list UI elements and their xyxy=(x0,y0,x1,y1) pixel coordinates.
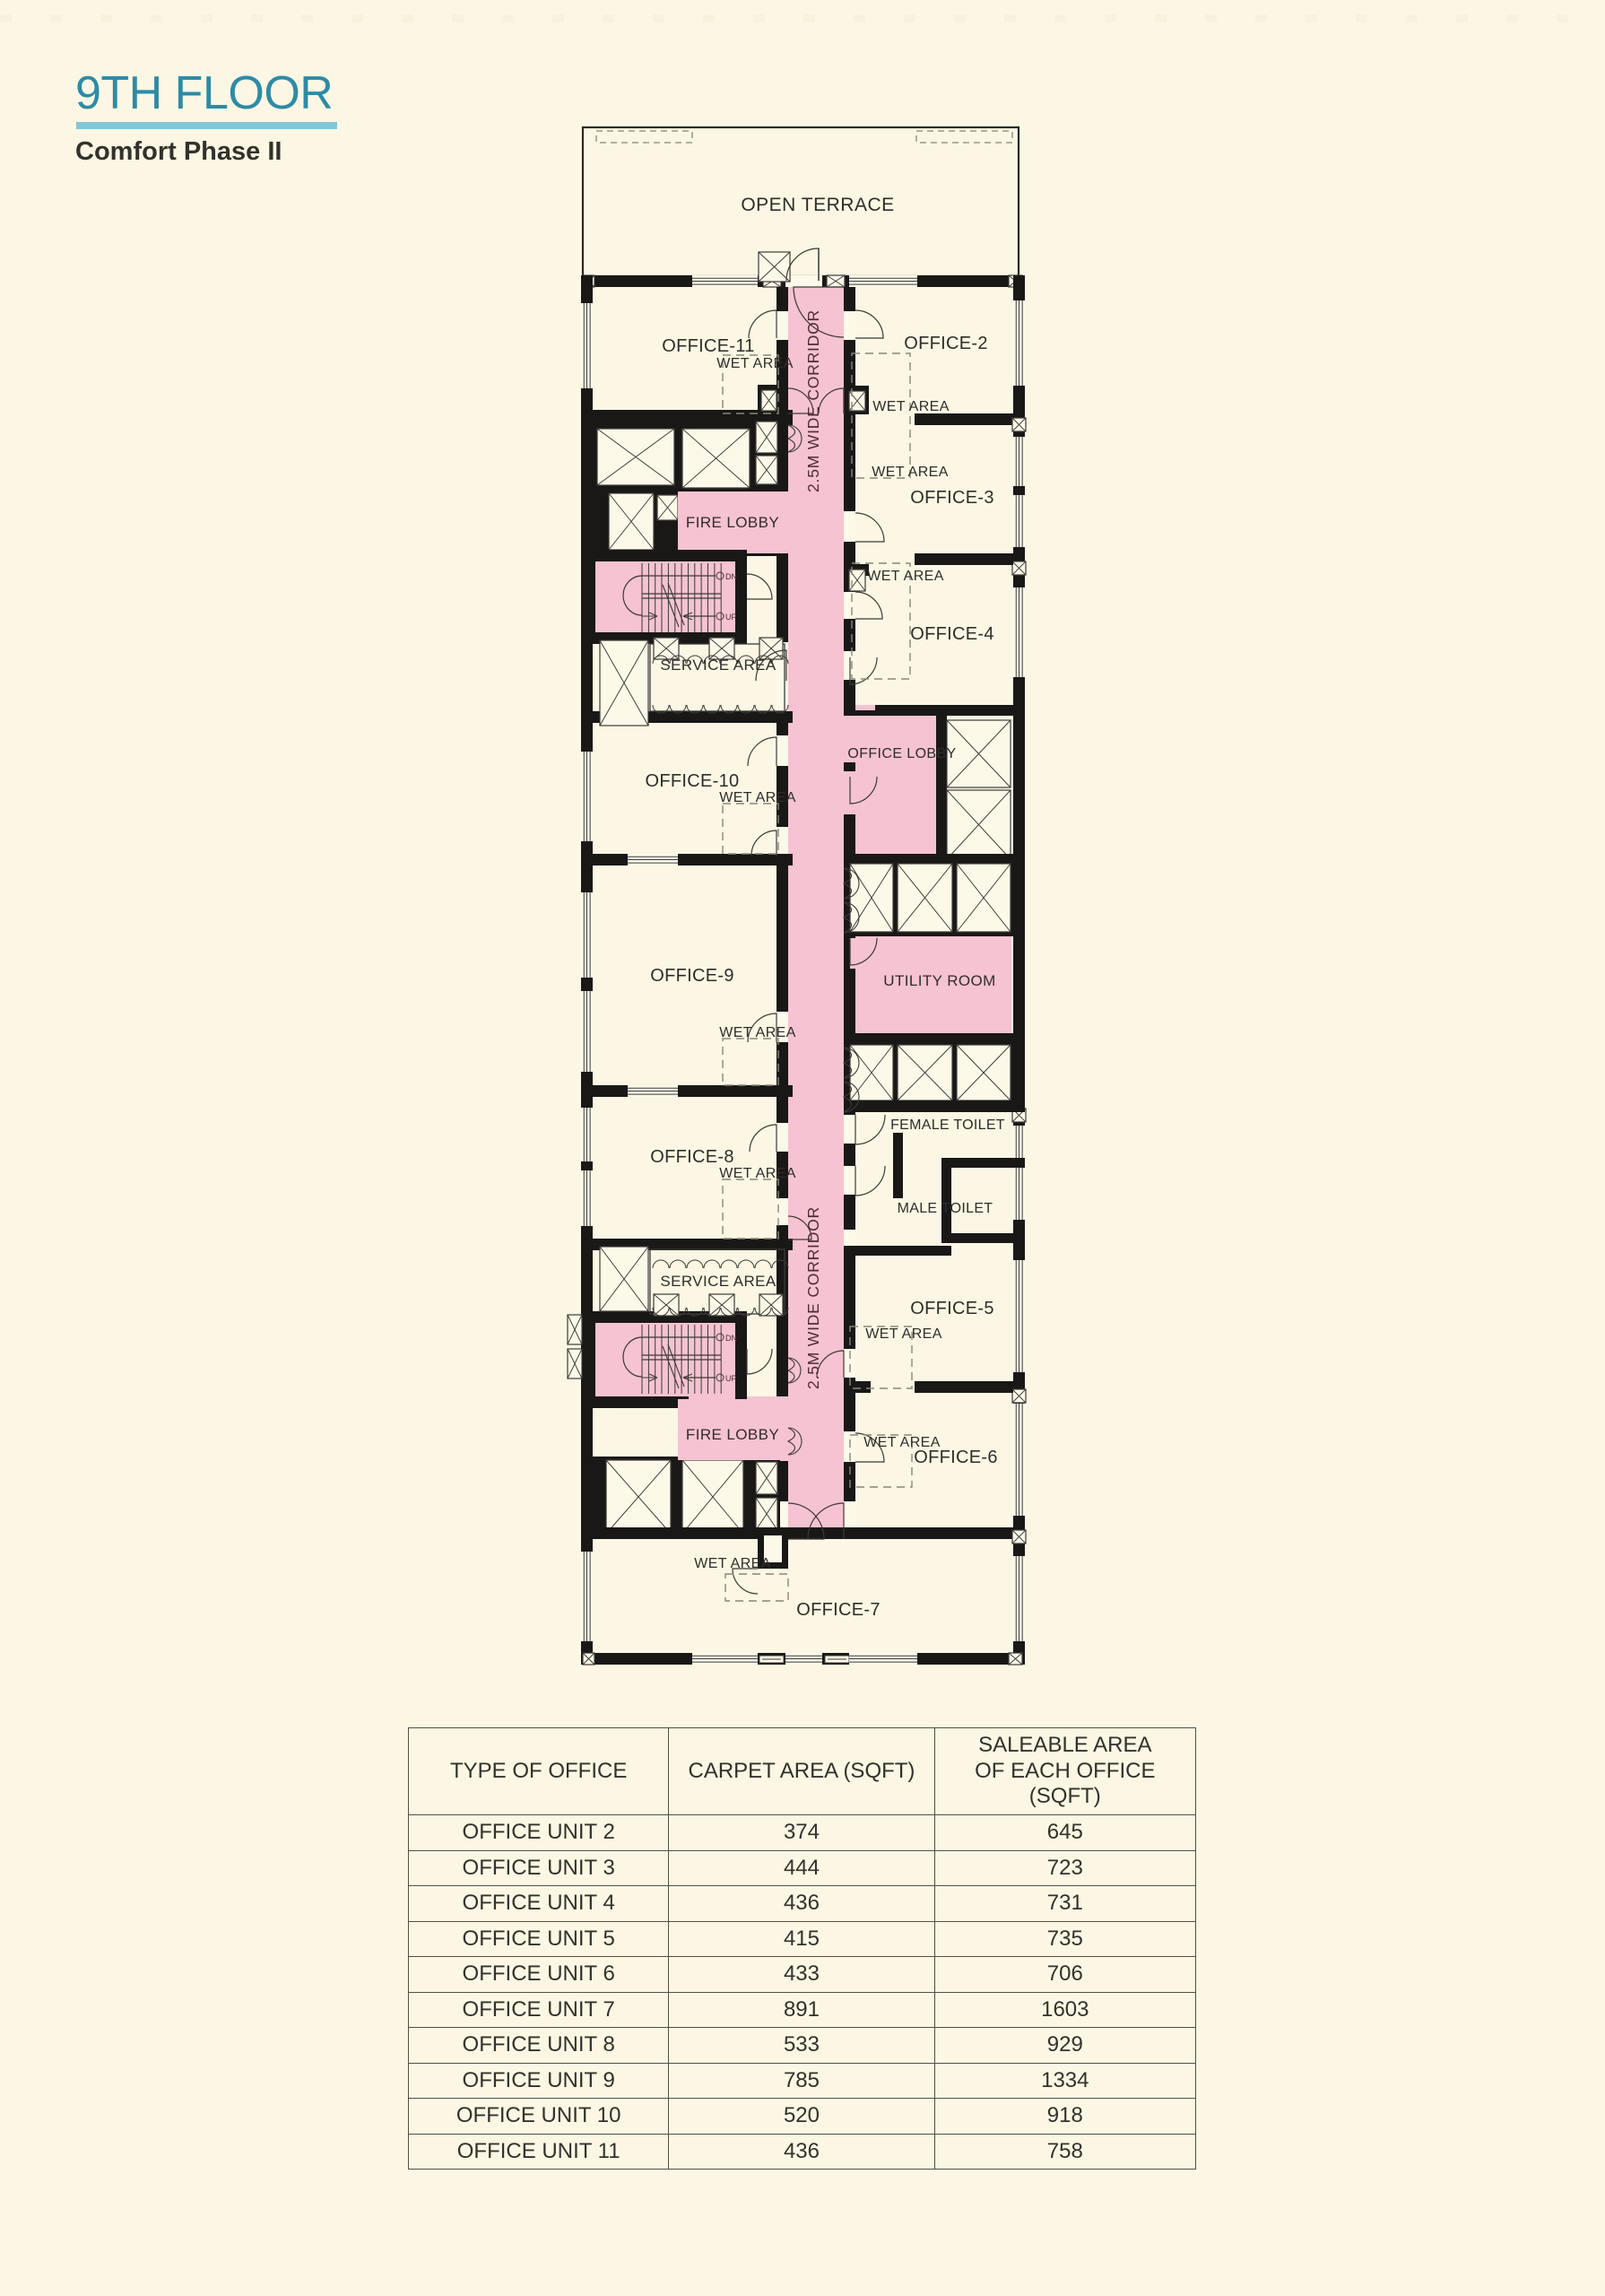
svg-text:OPEN TERRACE: OPEN TERRACE xyxy=(741,195,894,215)
svg-text:OFFICE-7: OFFICE-7 xyxy=(796,1600,881,1620)
svg-text:WET AREA: WET AREA xyxy=(716,356,794,371)
svg-text:OFFICE-8: OFFICE-8 xyxy=(650,1147,734,1167)
svg-text:WET AREA: WET AREA xyxy=(872,465,949,480)
svg-text:SERVICE AREA: SERVICE AREA xyxy=(660,657,776,674)
svg-text:OFFICE-3: OFFICE-3 xyxy=(910,488,994,508)
svg-text:OFFICE-2: OFFICE-2 xyxy=(904,334,988,353)
svg-text:OFFICE-5: OFFICE-5 xyxy=(910,1299,994,1318)
svg-text:UTILITY ROOM: UTILITY ROOM xyxy=(883,972,995,989)
svg-text:WET AREA: WET AREA xyxy=(865,1326,942,1342)
svg-text:OFFICE-6: OFFICE-6 xyxy=(914,1448,998,1467)
svg-text:DN: DN xyxy=(725,572,737,581)
svg-text:FIRE LOBBY: FIRE LOBBY xyxy=(686,1426,779,1443)
svg-text:WET AREA: WET AREA xyxy=(719,1166,796,1181)
svg-text:OFFICE-4: OFFICE-4 xyxy=(910,624,994,644)
svg-text:WET AREA: WET AREA xyxy=(867,569,944,584)
svg-text:OFFICE-10: OFFICE-10 xyxy=(646,771,740,791)
svg-text:WET AREA: WET AREA xyxy=(719,1025,796,1040)
svg-text:OFFICE LOBBY: OFFICE LOBBY xyxy=(847,746,956,761)
svg-text:MALE TOILET: MALE TOILET xyxy=(898,1201,993,1216)
svg-text:DN: DN xyxy=(725,1334,737,1343)
svg-text:WET AREA: WET AREA xyxy=(719,790,796,805)
svg-text:SERVICE AREA: SERVICE AREA xyxy=(660,1273,776,1290)
svg-text:FEMALE TOILET: FEMALE TOILET xyxy=(890,1118,1005,1133)
svg-text:2.5M WIDE CORRIDOR: 2.5M WIDE CORRIDOR xyxy=(804,309,822,492)
svg-text:WET AREA: WET AREA xyxy=(694,1556,771,1571)
svg-text:UP: UP xyxy=(725,1374,737,1383)
svg-text:WET AREA: WET AREA xyxy=(872,399,950,414)
svg-text:FIRE LOBBY: FIRE LOBBY xyxy=(686,514,779,531)
svg-text:2.5M WIDE CORRIDOR: 2.5M WIDE CORRIDOR xyxy=(804,1206,822,1389)
svg-text:UP: UP xyxy=(725,613,737,622)
svg-text:OFFICE-9: OFFICE-9 xyxy=(650,966,734,986)
svg-text:OFFICE-11: OFFICE-11 xyxy=(662,336,754,356)
